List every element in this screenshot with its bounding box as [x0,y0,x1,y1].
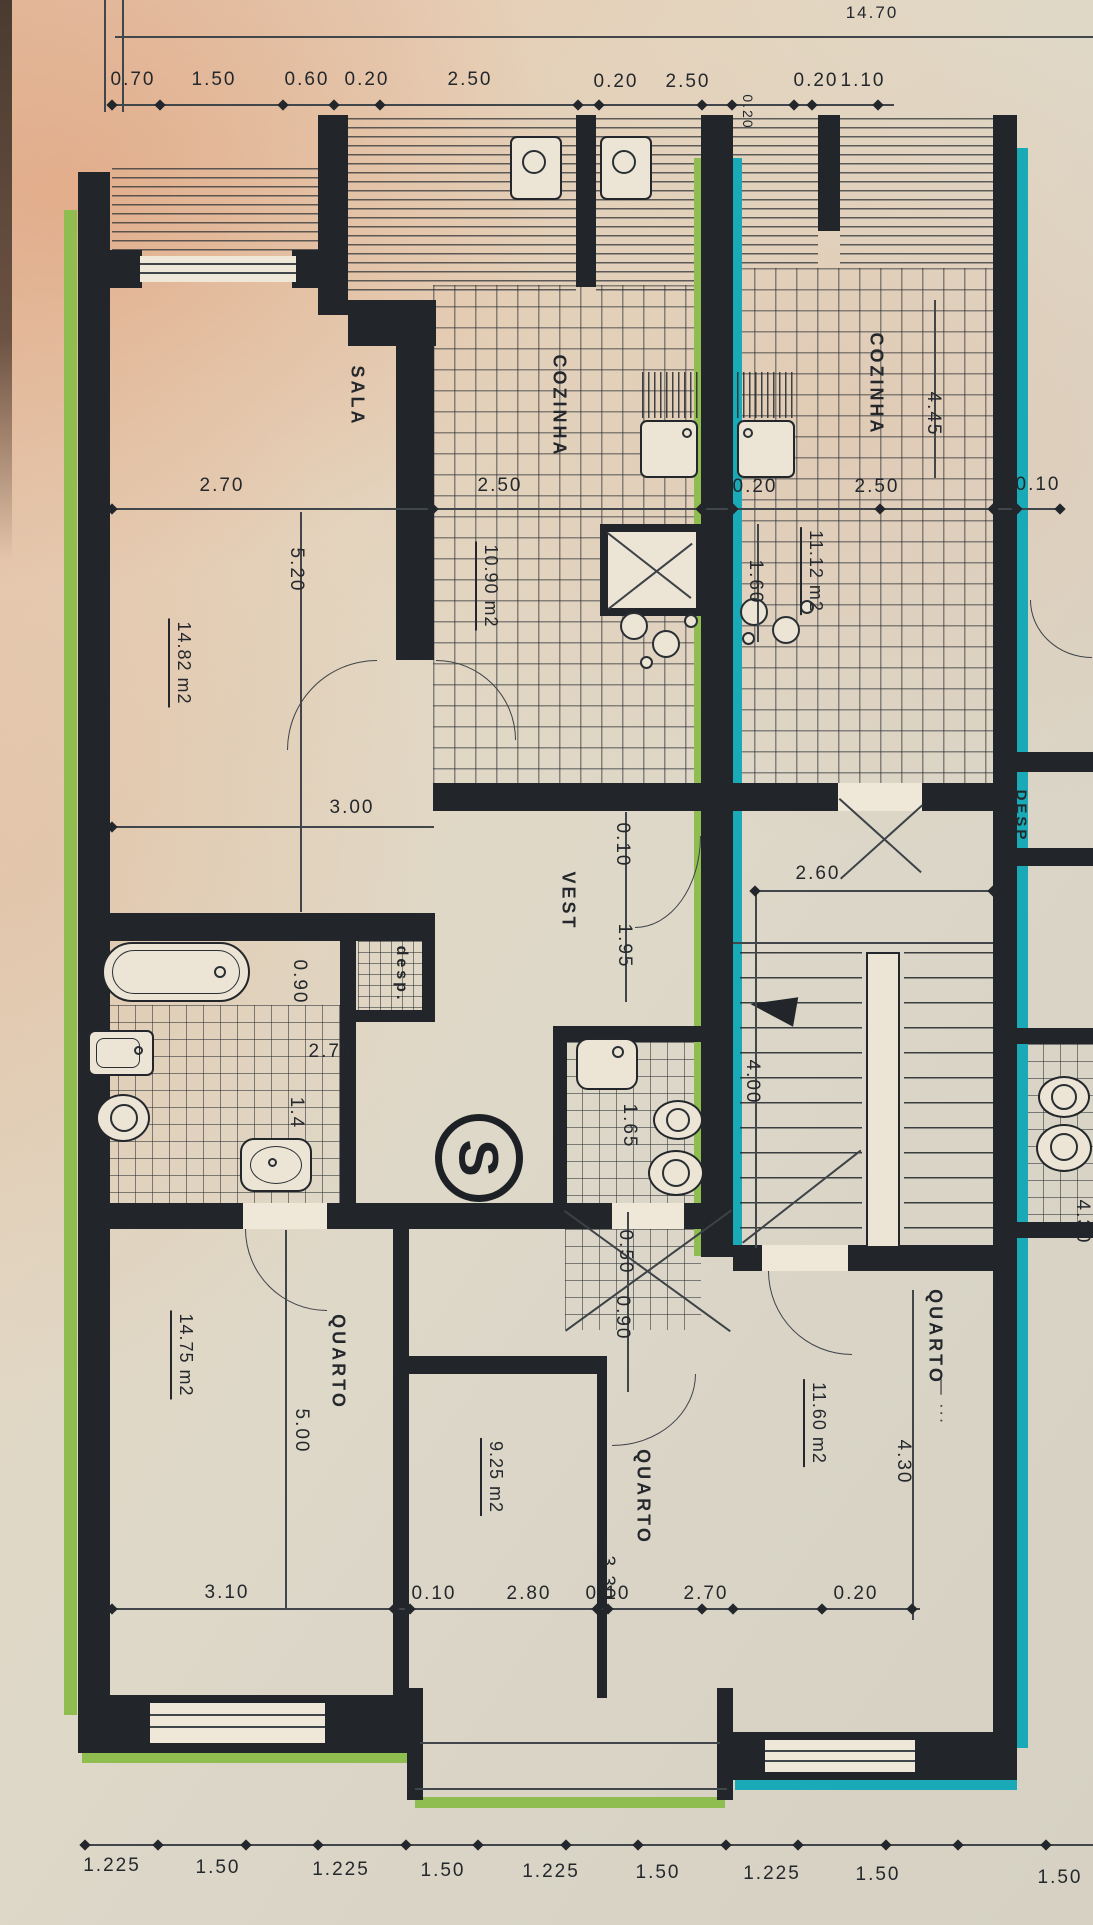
wall-right-unit [1017,1028,1093,1044]
dimension-tick [749,885,760,896]
kitchen-right-floor [733,268,993,783]
dimension-label: 4.30 [1071,1200,1093,1245]
dimension-tick [328,99,339,110]
teal-highlight-right-wall [1017,148,1028,1748]
stove-burner [772,616,800,644]
window-line [150,1726,325,1728]
dimension-line [112,508,1060,510]
area-label: 9.25 m2 [480,1438,506,1516]
bathtub-drain [214,966,226,978]
dimension-tick [806,99,817,110]
dimension-label: 0.20 [794,70,839,92]
dimension-label: 0.10 [586,1583,631,1605]
balcony-rail [415,1788,727,1790]
dimension-label: 1.10 [841,70,886,92]
photo-edge [0,0,12,560]
dimension-tick [560,1839,571,1850]
wall-kitchen-left-bottom [433,783,703,811]
dimension-tick [277,99,288,110]
wall-small-bedroom-top [407,1356,607,1374]
dimension-label: 1.60 [744,560,766,605]
room-label: DESP [1013,790,1030,843]
wall-bedroom-divider [393,1229,409,1699]
dimension-label: 1.50 [636,1862,681,1884]
dimension-tick [632,1839,643,1850]
door-arc [1030,600,1092,658]
dimension-label: 0.20 [594,71,639,93]
dimension-label: 1.4 [285,1097,307,1129]
dimension-tick [154,99,165,110]
dimension-label: 1.50 [196,1857,241,1879]
wall-party [701,115,733,1257]
stove-burner [620,612,648,640]
dimension-tick [240,1839,251,1850]
dimension-tick [472,1839,483,1850]
washbasin-drain [134,1046,143,1055]
dimension-label: 0.70 [111,69,156,91]
dimension-label: 1.225 [522,1861,580,1883]
dimension-tick [79,1839,90,1850]
area-label: 14.75 m2 [170,1310,196,1399]
room-label: SALA [347,366,368,427]
washbasin-drain [612,1046,624,1058]
dimension-label: 2.80 [507,1583,552,1605]
dimension-tick [106,99,117,110]
balcony-rail [420,1742,720,1744]
green-highlight-balcony [415,1797,725,1808]
area-label: 11.60 m2 [803,1379,829,1467]
wall-right-unit [1017,752,1093,772]
area-label: 10.90 m2 [475,541,501,630]
laundry-tub-drain [612,150,636,174]
stove-burner [652,630,680,658]
toilet-bowl [662,1159,690,1187]
dimension-label: 1.65 [618,1104,640,1149]
washbasin-drain [268,1158,277,1167]
terrace-hatch [112,168,318,252]
balcony-pier [407,1688,423,1800]
dimension-label: 1.50 [421,1860,466,1882]
washbasin-fixture [576,1038,638,1090]
dimension-label: 4.45 [922,392,944,437]
laundry-tub-drain [522,150,546,174]
dimension-tick [696,99,707,110]
stair-flight-right [904,952,993,1248]
dimension-tick [312,1839,323,1850]
wall-pantry [422,941,435,1016]
dimension-label: 0.10 [611,823,633,868]
dimension-tick [593,99,604,110]
wall-sala-kitchen [396,346,434,660]
dimension-tick [727,1603,738,1614]
stove-burner [742,632,755,645]
wall-exterior-right-unit [993,115,1017,1767]
door-arc [612,1374,696,1446]
wall-right-unit [1017,848,1093,866]
wall-pier [818,115,840,231]
room-label: QUARTO [633,1449,654,1545]
wall-bath-right [340,928,356,1206]
dimension-tick [872,99,883,110]
window-sala [140,256,296,282]
dimension-label: 0.60 [285,69,330,91]
wall-pantry-bottom [356,1010,435,1022]
stair-landing-line [733,942,993,944]
section-marker: S [435,1114,523,1202]
wall-pier [318,115,348,315]
terrace-hatch [840,118,993,264]
floor-plan-sheet: 14.700.701.500.600.202.500.202.500.201.1… [0,0,1093,1925]
dimension-label: 5.20 [285,548,307,593]
door-arc [768,1271,852,1355]
dimension-label: 2.50 [448,69,493,91]
window-bedroom-right [765,1740,915,1772]
dimension-tick [726,99,737,110]
dimension-label: 2.70 [200,475,245,497]
wall-small-bedroom-left [597,1372,607,1698]
dimension-tick [1054,503,1065,514]
border-line [104,0,106,112]
dimension-label: 2.50 [478,475,523,497]
dimension-line [85,1844,1093,1846]
toilet-bowl [110,1104,138,1132]
dimension-line [115,36,1093,38]
balcony-pier [717,1688,733,1800]
wall [90,250,142,288]
dimension-label: 0.90 [611,1296,633,1341]
terrace-hatch [733,118,818,264]
stove-burner [684,614,698,628]
dimension-tick [572,99,583,110]
dimension-label: 0.20 [733,476,778,498]
window-line [765,1750,915,1752]
dimension-tick [720,1839,731,1850]
window-line [140,272,296,274]
dimension-tick [152,1839,163,1850]
window-line [150,1714,325,1716]
dimension-label: 14.70 [846,3,899,23]
dimension-label: 1.50 [1038,1867,1083,1889]
dimension-label: 1.50 [856,1864,901,1886]
dimension-label: 3.00 [330,797,375,819]
dimension-tick [1040,1839,1051,1850]
dimension-label: 0.20 [740,94,756,129]
dimension-label: 0.10 [1016,474,1061,496]
dimension-line [755,890,993,892]
wall-exterior-left [78,172,110,1732]
washbasin-inner [96,1038,140,1068]
dimension-label: 4.00 [741,1060,763,1105]
dimension-label: 1.50 [192,69,237,91]
room-label: QUARTO [328,1314,349,1410]
dimension-tick [788,99,799,110]
sink-drain [682,428,692,438]
dimension-label: 1.225 [743,1863,801,1885]
dimension-label: 0.20 [834,1583,879,1605]
dimension-label: 2.75 [309,1041,354,1063]
draining-board [737,372,793,418]
area-label: 11.12 m2 [800,527,826,615]
misc-label: — ··· [932,1379,950,1425]
dimension-tick [952,1839,963,1850]
dimension-tick [792,1839,803,1850]
dimension-label: 0.10 [412,1583,457,1605]
green-highlight-left-wall [64,210,77,1715]
area-label: 14.82 m2 [168,618,194,707]
dimension-label: 2.50 [855,476,900,498]
entry-door-line [840,804,923,879]
room-label: VEST [558,871,579,930]
dimension-label: 1.95 [613,924,635,969]
dimension-tick [400,1839,411,1850]
wall-bath-middle-left [553,1026,567,1216]
room-label: COZINHA [866,333,887,436]
door-arc [635,836,701,928]
bidet-bowl [1051,1084,1077,1110]
dimension-label: 2.50 [666,71,711,93]
window-line [765,1760,915,1762]
dimension-label: 2.70 [684,1583,729,1605]
dimension-tick [696,1603,707,1614]
dimension-tick [816,1603,827,1614]
pantry-floor [358,941,422,1010]
dimension-label: 0.90 [288,960,310,1005]
dimension-line [285,1230,287,1610]
border-line [122,0,124,112]
room-label: QUARTO [925,1289,946,1385]
dimension-line [934,300,936,478]
dimension-label: 4.30 [892,1440,914,1485]
dimension-line [112,104,894,106]
dimension-label: 0.20 [345,69,390,91]
dimension-label: 1.225 [83,1855,141,1877]
dimension-label: 2.60 [796,863,841,885]
section-marker-letter: S [451,1139,507,1176]
window-line [140,263,296,265]
dimension-label: 5.00 [290,1409,312,1454]
dimension-tick [374,99,385,110]
door-opening [612,1203,684,1229]
wall-pier [576,115,596,287]
room-label: desp. [392,946,410,1003]
bidet-bowl [666,1108,690,1132]
window-bedroom-left [150,1703,325,1743]
door-opening [243,1203,327,1229]
dimension-label: 3.10 [205,1582,250,1604]
stair-rail [866,952,900,1248]
wall-sala-bottom [78,913,435,941]
stove-burner [640,656,653,669]
dimension-line [112,826,434,828]
dimension-label: 0.50 [614,1230,636,1275]
wall [348,300,436,346]
dimension-tick [880,1839,891,1850]
toilet-bowl [1050,1133,1078,1161]
draining-board [642,372,698,418]
dimension-line [112,1608,920,1610]
door-opening [762,1245,848,1271]
room-label: COZINHA [549,355,570,458]
dimension-label: 1.225 [312,1859,370,1881]
dimension-tick [906,1603,917,1614]
sink-drain [743,428,753,438]
